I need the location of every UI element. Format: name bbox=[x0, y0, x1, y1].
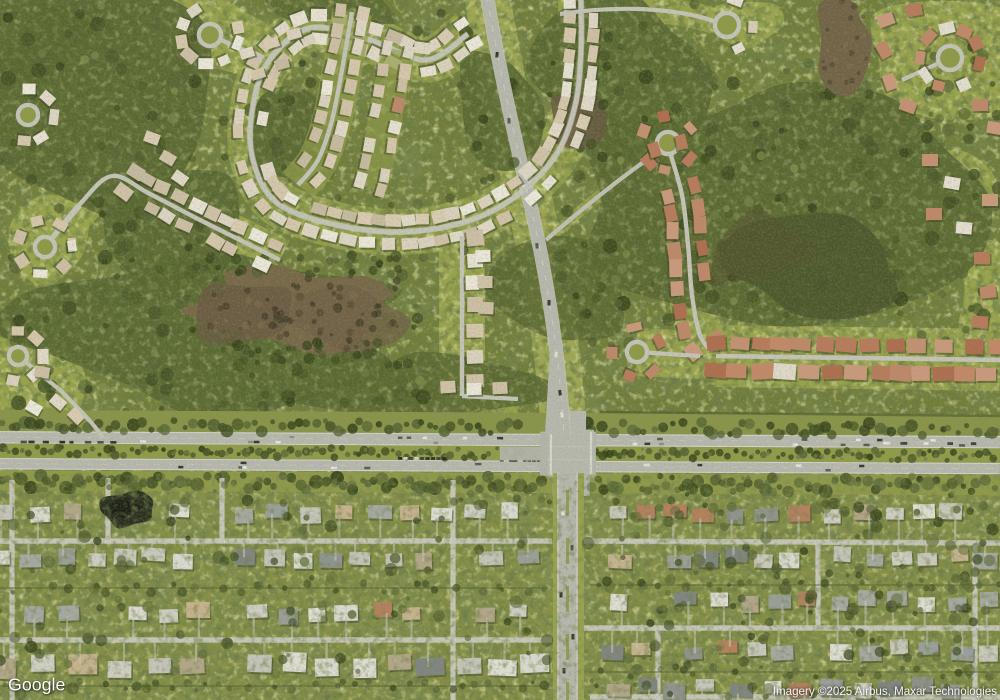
svg-text:Imagery ©2025 Airbus, Maxar Te: Imagery ©2025 Airbus, Maxar Technologies bbox=[773, 685, 997, 698]
svg-text:Google: Google bbox=[8, 675, 65, 695]
